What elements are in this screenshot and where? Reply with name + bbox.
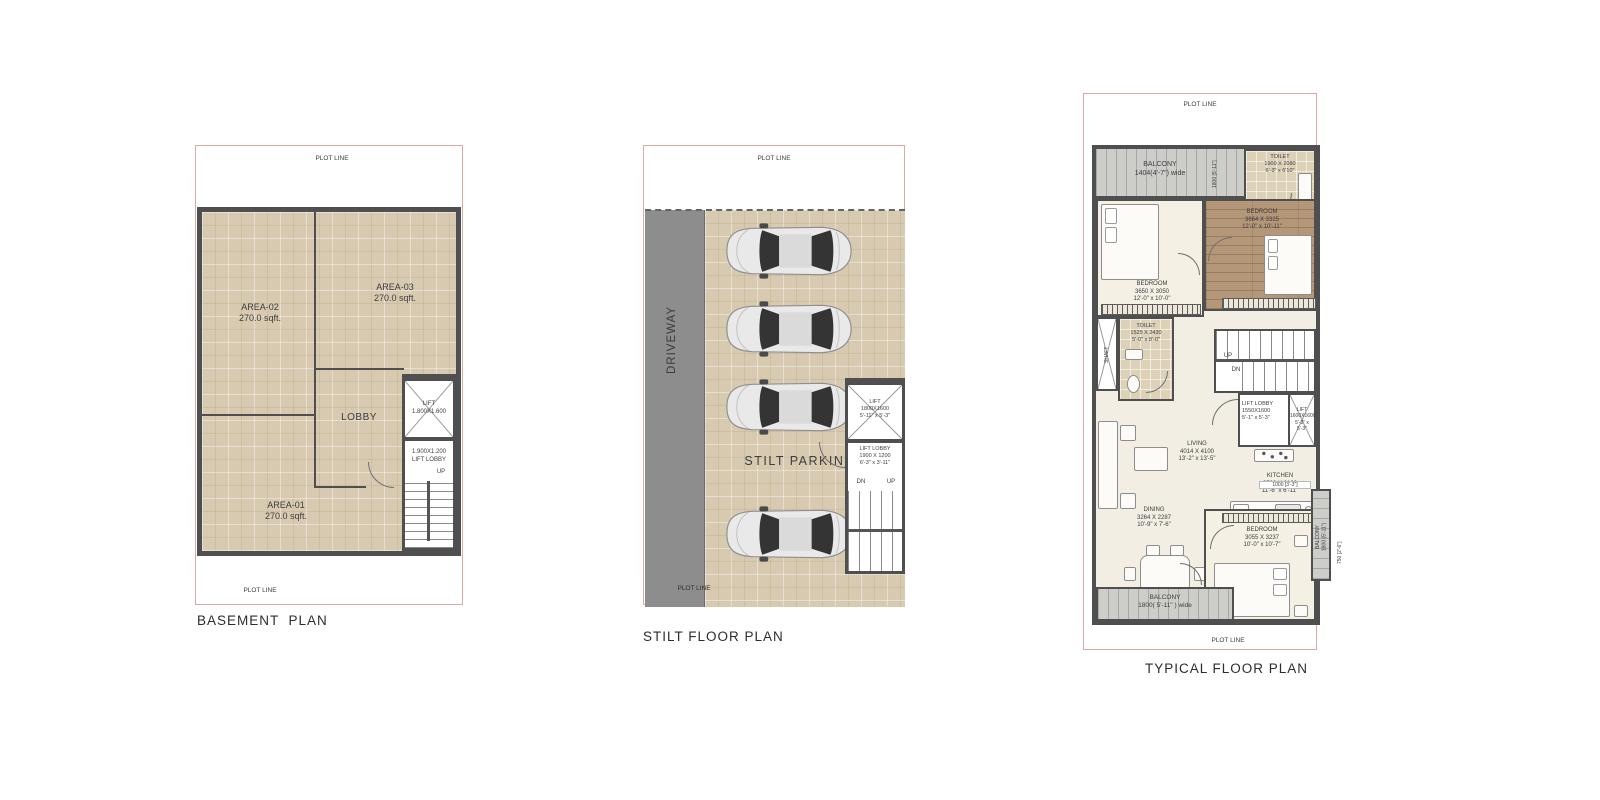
door-arc-icon [1212, 399, 1238, 425]
room-label: AREA-01 270.0 sqft. [230, 500, 342, 523]
typical-floor-plan: PLOT LINE BALCONY 1404(4'-7") wide 1800 … [1083, 93, 1358, 693]
stairs-dn-label: DN [1226, 367, 1246, 375]
wall [314, 212, 316, 370]
lift-shaft: LIFT 1600X1600 5'-3" x 5'-3" [1288, 393, 1316, 447]
room-label: AREA-03 270.0 sqft. [342, 282, 448, 305]
plan-title: TYPICAL FLOOR PLAN [1145, 661, 1308, 676]
plan-title: BASEMENT PLAN [197, 613, 328, 628]
door-arc-icon [1208, 237, 1232, 261]
room-label: AREA-02 270.0 sqft. [208, 302, 312, 325]
stairs-up-label: UP [882, 479, 900, 487]
room-label: BALCONY 1404(4'-7") wide [1104, 161, 1216, 179]
sofa [1098, 421, 1118, 509]
car-icon [719, 222, 857, 280]
room-label: BEDROOM 3664 X 3325 12'-0" x 10'-11" [1218, 209, 1306, 232]
lift-label: LIFT 1600X1600 5'-3" x 5'-3" [1290, 407, 1314, 432]
dining-chair [1146, 545, 1160, 556]
pillow [1268, 239, 1278, 253]
lift-lobby-label: LIFT LOBBY 1900 X 1200 6'-3" x 3'-11" [848, 446, 902, 467]
car-icon [719, 505, 857, 563]
pillow [1105, 227, 1117, 243]
door-arc-icon [1210, 525, 1234, 549]
room-label: TOILET 1525 X 2430 5'-0" x 8'-0" [1120, 323, 1172, 344]
dimension-label: 750 [2'-6"] [1337, 521, 1343, 585]
pillow [1273, 584, 1287, 596]
lift-shaft: LIFT 1.800X1.600 [405, 377, 453, 441]
plot-line-label: PLOT LINE [1155, 101, 1245, 109]
plot-line-label: PLOT LINE [1191, 637, 1265, 645]
hob-burners-icon [1255, 450, 1293, 461]
wall [314, 368, 316, 488]
car-icon [719, 300, 857, 358]
stair-core: LIFT 1.800X1.600 1.900X1.200 LIFT LOBBY … [402, 374, 456, 551]
wardrobe-hatch [1222, 513, 1314, 523]
stairs-up-label: UP [431, 469, 451, 477]
lift-lobby-label: LIFT LOBBY 1550X1600 5'-1" x 5'-3" [1242, 401, 1290, 422]
basement-plan: PLOT LINE AREA-02 270.0 sqft. AREA-03 27… [195, 145, 467, 650]
lift-shaft: LIFT 1800X1600 5'-11" x 5'-3" [848, 381, 902, 443]
dimension-label: 1800 [5'-11"] [1212, 153, 1218, 195]
door-arc-icon [368, 462, 394, 488]
lift-lobby: LIFT LOBBY 1550X1600 5'-1" x 5'-3" [1238, 393, 1292, 447]
pillow [1273, 568, 1287, 580]
pillow [1105, 208, 1117, 224]
lift-lobby-label: 1.900X1.200 LIFT LOBBY [405, 449, 453, 464]
plot-line-label: PLOT LINE [287, 155, 377, 163]
plan-title: STILT FLOOR PLAN [643, 629, 784, 644]
shaft: SHAFT [1096, 317, 1118, 391]
lift-label: LIFT 1.800X1.600 [405, 401, 453, 416]
bedside-table [1294, 535, 1308, 547]
toilet-wc [1127, 375, 1140, 393]
building-outline: AREA-02 270.0 sqft. AREA-03 270.0 sqft. … [197, 207, 461, 556]
driveway-label: DRIVEWAY [665, 250, 679, 430]
wardrobe-hatch [1222, 298, 1316, 309]
stair-rail [848, 529, 902, 532]
balcony: BALCONY 1404(4'-7") wide 1800 [5'-11"] [1096, 149, 1244, 199]
wall [314, 368, 404, 370]
room-label: BEDROOM 3650 X 3050 12'-0" x 10'-0" [1108, 281, 1196, 304]
floor-plans-sheet: PLOT LINE AREA-02 270.0 sqft. AREA-03 27… [0, 0, 1600, 800]
stairs-up-label: UP [1218, 353, 1238, 361]
wall [202, 414, 316, 416]
bedside-table [1294, 605, 1308, 617]
toilet: TOILET 1525 X 2430 5'-0" x 8'-0" [1118, 317, 1174, 401]
coffee-table [1134, 447, 1168, 471]
room-label: LOBBY [316, 412, 402, 425]
dimension-label: 1000 [3'-3"] [1259, 481, 1311, 489]
plot-line-label: PLOT LINE [729, 155, 819, 163]
stairs [848, 491, 902, 571]
building-outline: BALCONY 1404(4'-7") wide 1800 [5'-11"] T… [1092, 145, 1320, 625]
bed [1101, 204, 1159, 280]
washbasin [1125, 349, 1143, 360]
room-label: LIVING 4014 X 4100 13'-2" x 13'-5" [1156, 441, 1238, 464]
stair-rail [427, 481, 430, 541]
parking-floor: STILT PARKING LIFT 1800X1600 5'-11" x 5'… [705, 210, 905, 607]
dining-chair [1170, 545, 1184, 556]
room-label: BALCONY 1800 (5'-11") [1315, 495, 1329, 579]
room-label: BEDROOM 3055 X 3237 10'-0" x 10'-7" [1226, 527, 1298, 550]
armchair [1120, 425, 1136, 441]
balcony: BALCONY 1800 (5'-11") [1311, 489, 1331, 581]
lift-lobby: LIFT LOBBY 1900 X 1200 6'-3" x 3'-11" DN… [848, 443, 902, 491]
dining-chair [1124, 567, 1136, 581]
pillow [1268, 256, 1278, 270]
stairs-dn-label: DN [852, 479, 870, 487]
driveway: DRIVEWAY [645, 210, 705, 607]
stilt-floor-plan: PLOT LINE DRIVEWAY STILT PARKING LIFT 18… [643, 145, 911, 657]
stair-core: LIFT 1800X1600 5'-11" x 5'-3" LIFT LOBBY… [845, 378, 905, 574]
plot-line-label: PLOT LINE [223, 587, 297, 595]
building-edge-dashed [645, 209, 905, 211]
stairs: UP DN [1214, 329, 1316, 393]
stair-flight [1242, 362, 1314, 391]
bedroom: BEDROOM 3664 X 3325 12'-0" x 10'-11" [1204, 199, 1316, 311]
bedroom: BEDROOM 3650 X 3050 12'-0" x 10'-0" [1096, 199, 1204, 317]
balcony: BALCONY 1800( 5'-11" ) wide [1096, 587, 1234, 621]
door-arc-icon [1146, 371, 1168, 393]
room-label: SHAFT [1104, 327, 1110, 383]
car-icon [719, 378, 857, 436]
kitchen-hob [1254, 449, 1294, 462]
room-label: BALCONY 1800( 5'-11" ) wide [1110, 594, 1220, 610]
wardrobe-hatch [1101, 304, 1201, 315]
room-label: DINING 3264 X 2287 10'-9" x 7'-6" [1114, 507, 1194, 530]
door-arc-icon [1178, 253, 1200, 275]
bed [1264, 235, 1312, 295]
room-label: TOILET 1900 X 2080 6'-3" x 6'10" [1248, 154, 1312, 175]
stairs: UP [405, 481, 453, 548]
lift-label: LIFT 1800X1600 5'-11" x 5'-3" [848, 399, 902, 420]
wall [314, 486, 366, 488]
plot-line-label: PLOT LINE [657, 585, 731, 593]
